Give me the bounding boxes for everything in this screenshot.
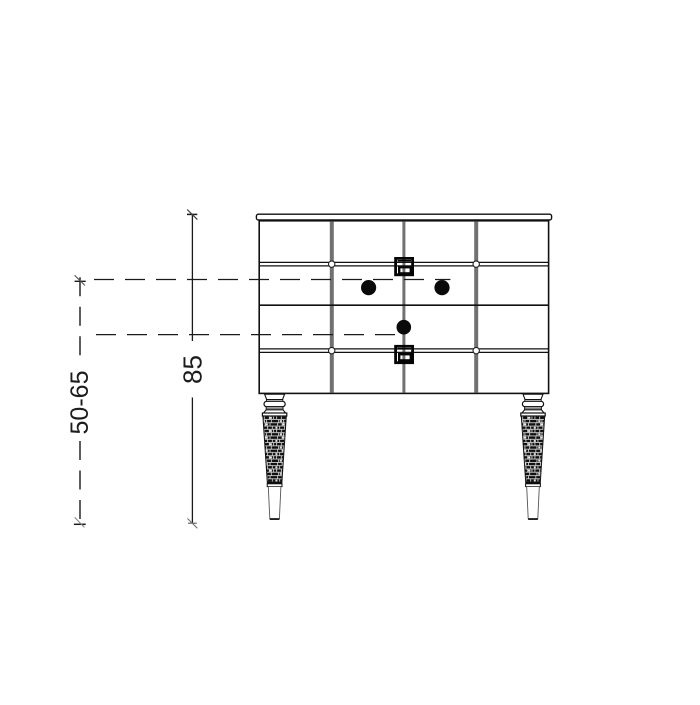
- svg-text:85: 85: [178, 355, 208, 384]
- svg-text:50-65: 50-65: [66, 371, 94, 435]
